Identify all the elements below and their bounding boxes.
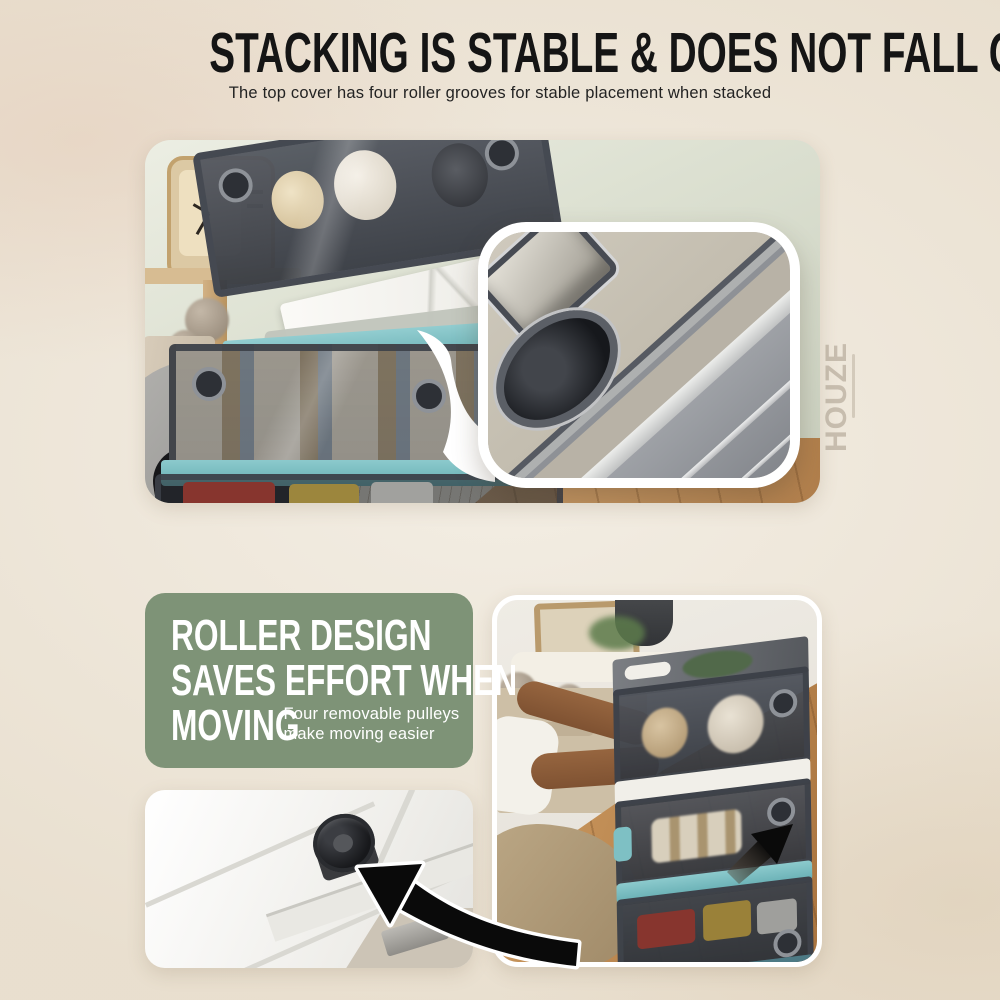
plush-toy: [707, 692, 764, 757]
plush-toy: [641, 705, 688, 761]
feature-heading-line2: SAVES EFFORT WHEN: [171, 658, 388, 703]
moving-box-stack: [612, 646, 817, 961]
watermark-tagline-bar: [852, 354, 855, 418]
brand-watermark-text: HOUZE: [820, 342, 854, 452]
page-title: STACKING IS STABLE & DOES NOT FALL OVER: [209, 24, 1000, 82]
white-latch: [625, 661, 671, 681]
feature-note: Four removable pulleys make moving easie…: [283, 704, 463, 744]
detail-inset-roller-groove: [478, 222, 800, 488]
roller-wheel: [307, 807, 382, 879]
feature-card: ROLLER DESIGN SAVES EFFORT WHEN MOVING F…: [145, 593, 473, 768]
plant-leaves: [589, 616, 645, 650]
moving-scene-photo: [492, 595, 822, 967]
feature-heading-line1: ROLLER DESIGN: [171, 613, 388, 658]
product-infographic: STACKING IS STABLE & DOES NOT FALL OVER …: [0, 0, 1000, 1000]
brand-watermark: HOUZE: [806, 336, 866, 456]
page-subtitle: The top cover has four roller grooves fo…: [0, 84, 1000, 103]
feature-heading-line3: MOVING: [171, 703, 299, 748]
latch-dial: [769, 688, 797, 719]
wheel-hub: [331, 832, 355, 855]
teal-latch: [613, 826, 632, 862]
header: STACKING IS STABLE & DOES NOT FALL OVER …: [0, 24, 1000, 103]
main-photo-stacking-scene: [145, 140, 820, 503]
tinted-panel: [161, 480, 557, 503]
motion-arrow-icon: [725, 810, 809, 902]
roller-closeup-photo: [145, 790, 473, 968]
